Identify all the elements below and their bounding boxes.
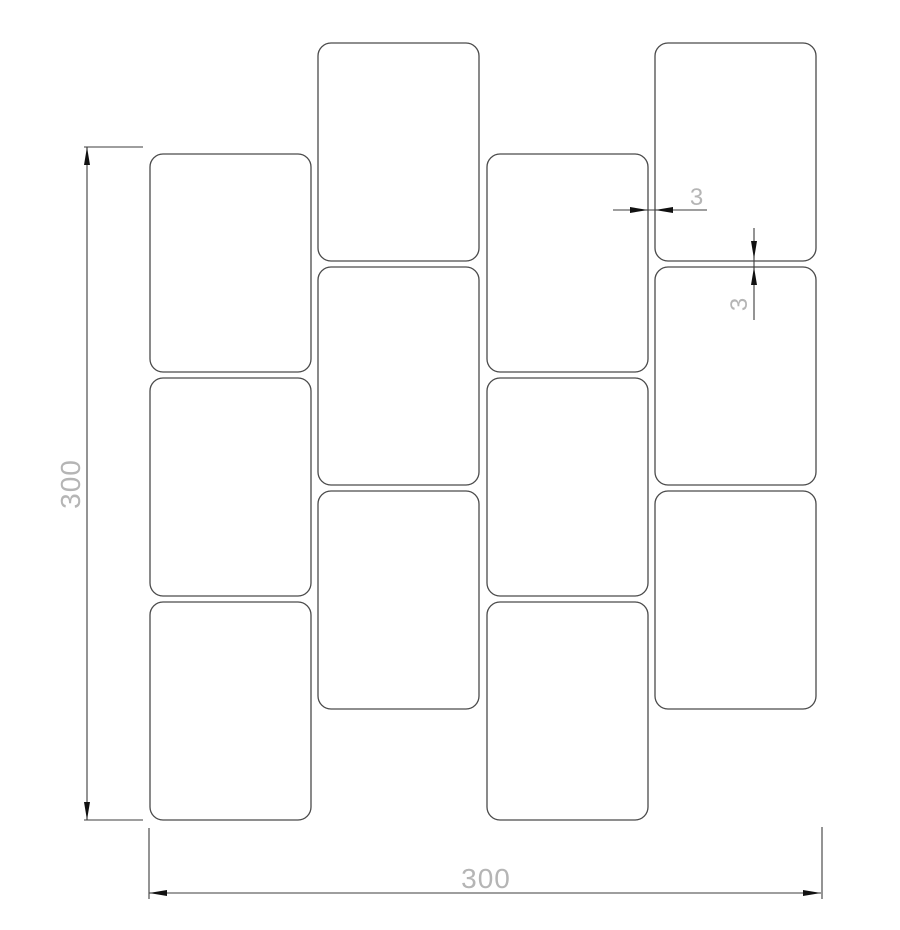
dim-gap-horizontal-arrow-left: [655, 207, 673, 213]
dim-height-arrow-down: [84, 802, 90, 820]
dim-width-arrow-left: [149, 890, 167, 896]
cad-drawing: 30030033: [0, 0, 900, 930]
tile-col1-row3: [150, 602, 311, 820]
tile-col1-row2: [150, 378, 311, 596]
dim-height-arrow-up: [84, 147, 90, 165]
dim-width-arrow-right: [803, 890, 821, 896]
dim-gap-horizontal-arrow-right: [630, 207, 648, 213]
dim-width-label: 300: [461, 863, 511, 894]
tile-col3-row1: [487, 154, 648, 372]
dim-gap-vertical-label: 3: [726, 297, 753, 311]
dim-gap-horizontal-label: 3: [690, 184, 704, 211]
tile-col2-row1: [318, 43, 479, 261]
tile-col3-row3: [487, 602, 648, 820]
tile-col4-row3: [655, 491, 816, 709]
tile-col2-row2: [318, 267, 479, 485]
dim-gap-vertical-arrow-down: [751, 241, 757, 259]
tile-pattern-svg: 30030033: [0, 0, 900, 930]
dim-height-label: 300: [55, 459, 86, 509]
tile-col1-row1: [150, 154, 311, 372]
tile-col2-row3: [318, 491, 479, 709]
dim-gap-vertical-arrow-up: [751, 267, 757, 285]
tile-col3-row2: [487, 378, 648, 596]
tile-col4-row1: [655, 43, 816, 261]
